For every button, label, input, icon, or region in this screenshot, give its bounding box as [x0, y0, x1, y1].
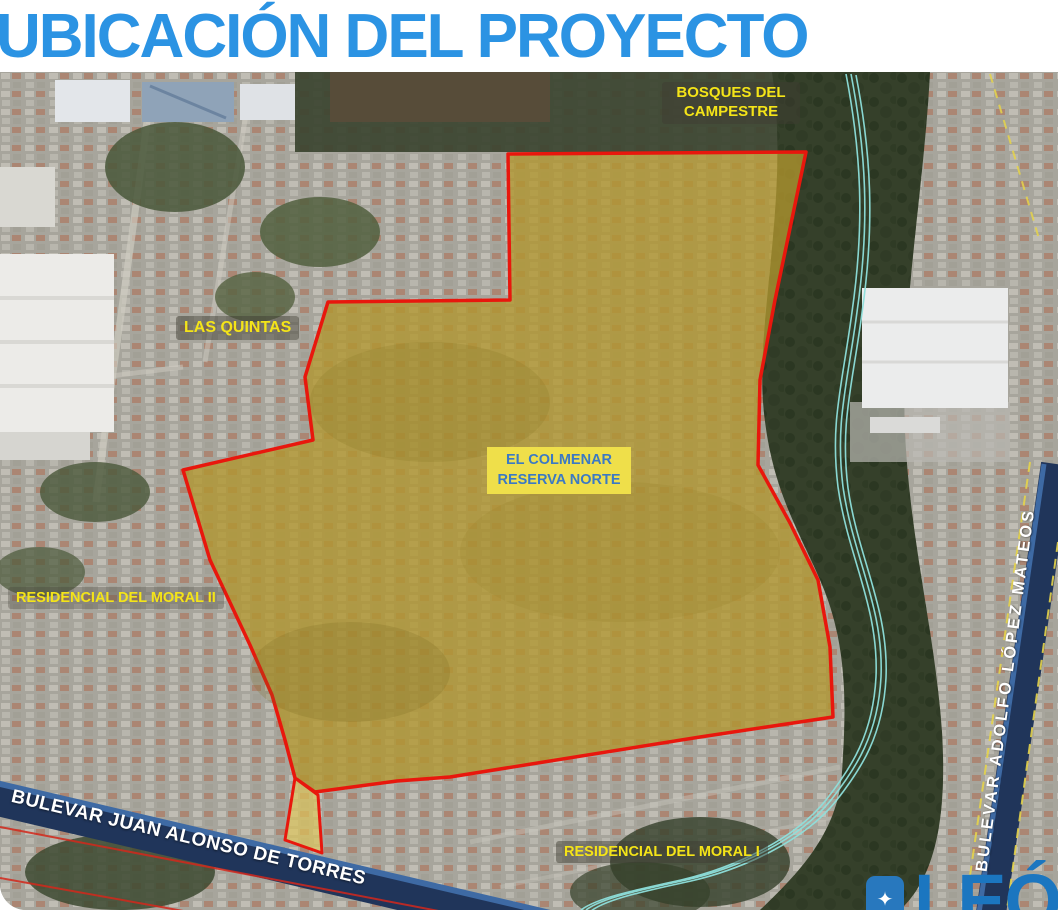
label-residencial-del-moral-1: RESIDENCIAL DEL MORAL I [556, 841, 768, 863]
page-title: UBICACIÓN DEL PROYECTO [0, 0, 1058, 72]
label-bosques-line2: CAMPESTRE [684, 103, 778, 120]
retail-building-right [850, 288, 1010, 462]
project-name-line1: EL COLMENAR [506, 452, 612, 468]
leon-logo-icon: ✦ [866, 876, 904, 910]
project-name-line2: RESERVA NORTE [497, 472, 620, 488]
label-bosques-line1: BOSQUES DEL [676, 84, 785, 101]
satellite-map: BOSQUES DEL CAMPESTRE LAS QUINTAS RESIDE… [0, 72, 1058, 910]
title-band: UBICACIÓN DEL PROYECTO [0, 0, 1058, 72]
leon-logo-text: LEÓN [914, 864, 1058, 910]
project-name-box: EL COLMENAR RESERVA NORTE [487, 447, 631, 494]
label-bosques-del-campestre: BOSQUES DEL CAMPESTRE [662, 82, 800, 124]
industrial-building-left [0, 254, 114, 460]
label-las-quintas: LAS QUINTAS [176, 316, 299, 340]
slide: { "slide": { "title": "UBICACIÓN DEL PRO… [0, 0, 1058, 910]
leon-logo: ✦ LEÓN [866, 864, 1058, 910]
label-residencial-del-moral-2: RESIDENCIAL DEL MORAL II [8, 587, 224, 609]
